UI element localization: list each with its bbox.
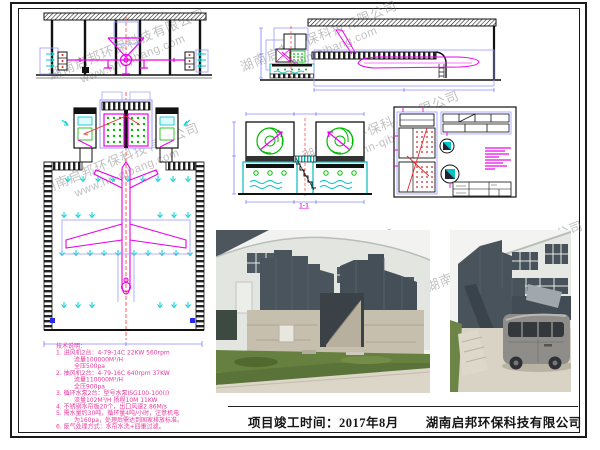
ahu-elevation — [62, 92, 190, 162]
van — [503, 314, 570, 370]
front-elevation-drawing — [28, 8, 218, 93]
side-elevation-drawing — [258, 14, 503, 99]
booth-plan-drawing — [38, 90, 210, 352]
fan-unit-right — [313, 122, 367, 194]
company-name: 湖南启邦环保科技有限公司 — [426, 412, 582, 431]
grating-band — [312, 52, 436, 59]
exhaust-unit — [266, 28, 314, 78]
tech-notes: 技术说明： 1. 进风机2台：4-79-14C 22KW 560rpm 流量10… — [56, 343, 226, 430]
drawing-sheet: 湖南启邦环保科技有限公司 www.hn-qibang.com 湖南启邦环保科技有… — [0, 0, 600, 450]
booth-walls — [44, 162, 204, 330]
aircraft-side-view — [336, 30, 479, 68]
panel-elevation — [393, 108, 437, 194]
title-block — [453, 182, 511, 196]
ladder — [439, 64, 444, 78]
factory-photo-left — [216, 230, 430, 393]
fan-unit-left — [243, 122, 297, 194]
project-caption: 项目竣工时间：2017年8月 湖南启邦环保科技有限公司 — [228, 412, 578, 431]
section-label: 1-1 — [299, 202, 309, 209]
caption-divider — [228, 406, 578, 407]
tech-note: 6. 废气处理方式：水帘水洗+四重过滤。 — [56, 424, 226, 431]
completion-date: 项目竣工时间：2017年8月 — [248, 412, 399, 431]
detail-sheet-drawing — [393, 106, 517, 200]
factory-photo-right — [450, 230, 571, 392]
